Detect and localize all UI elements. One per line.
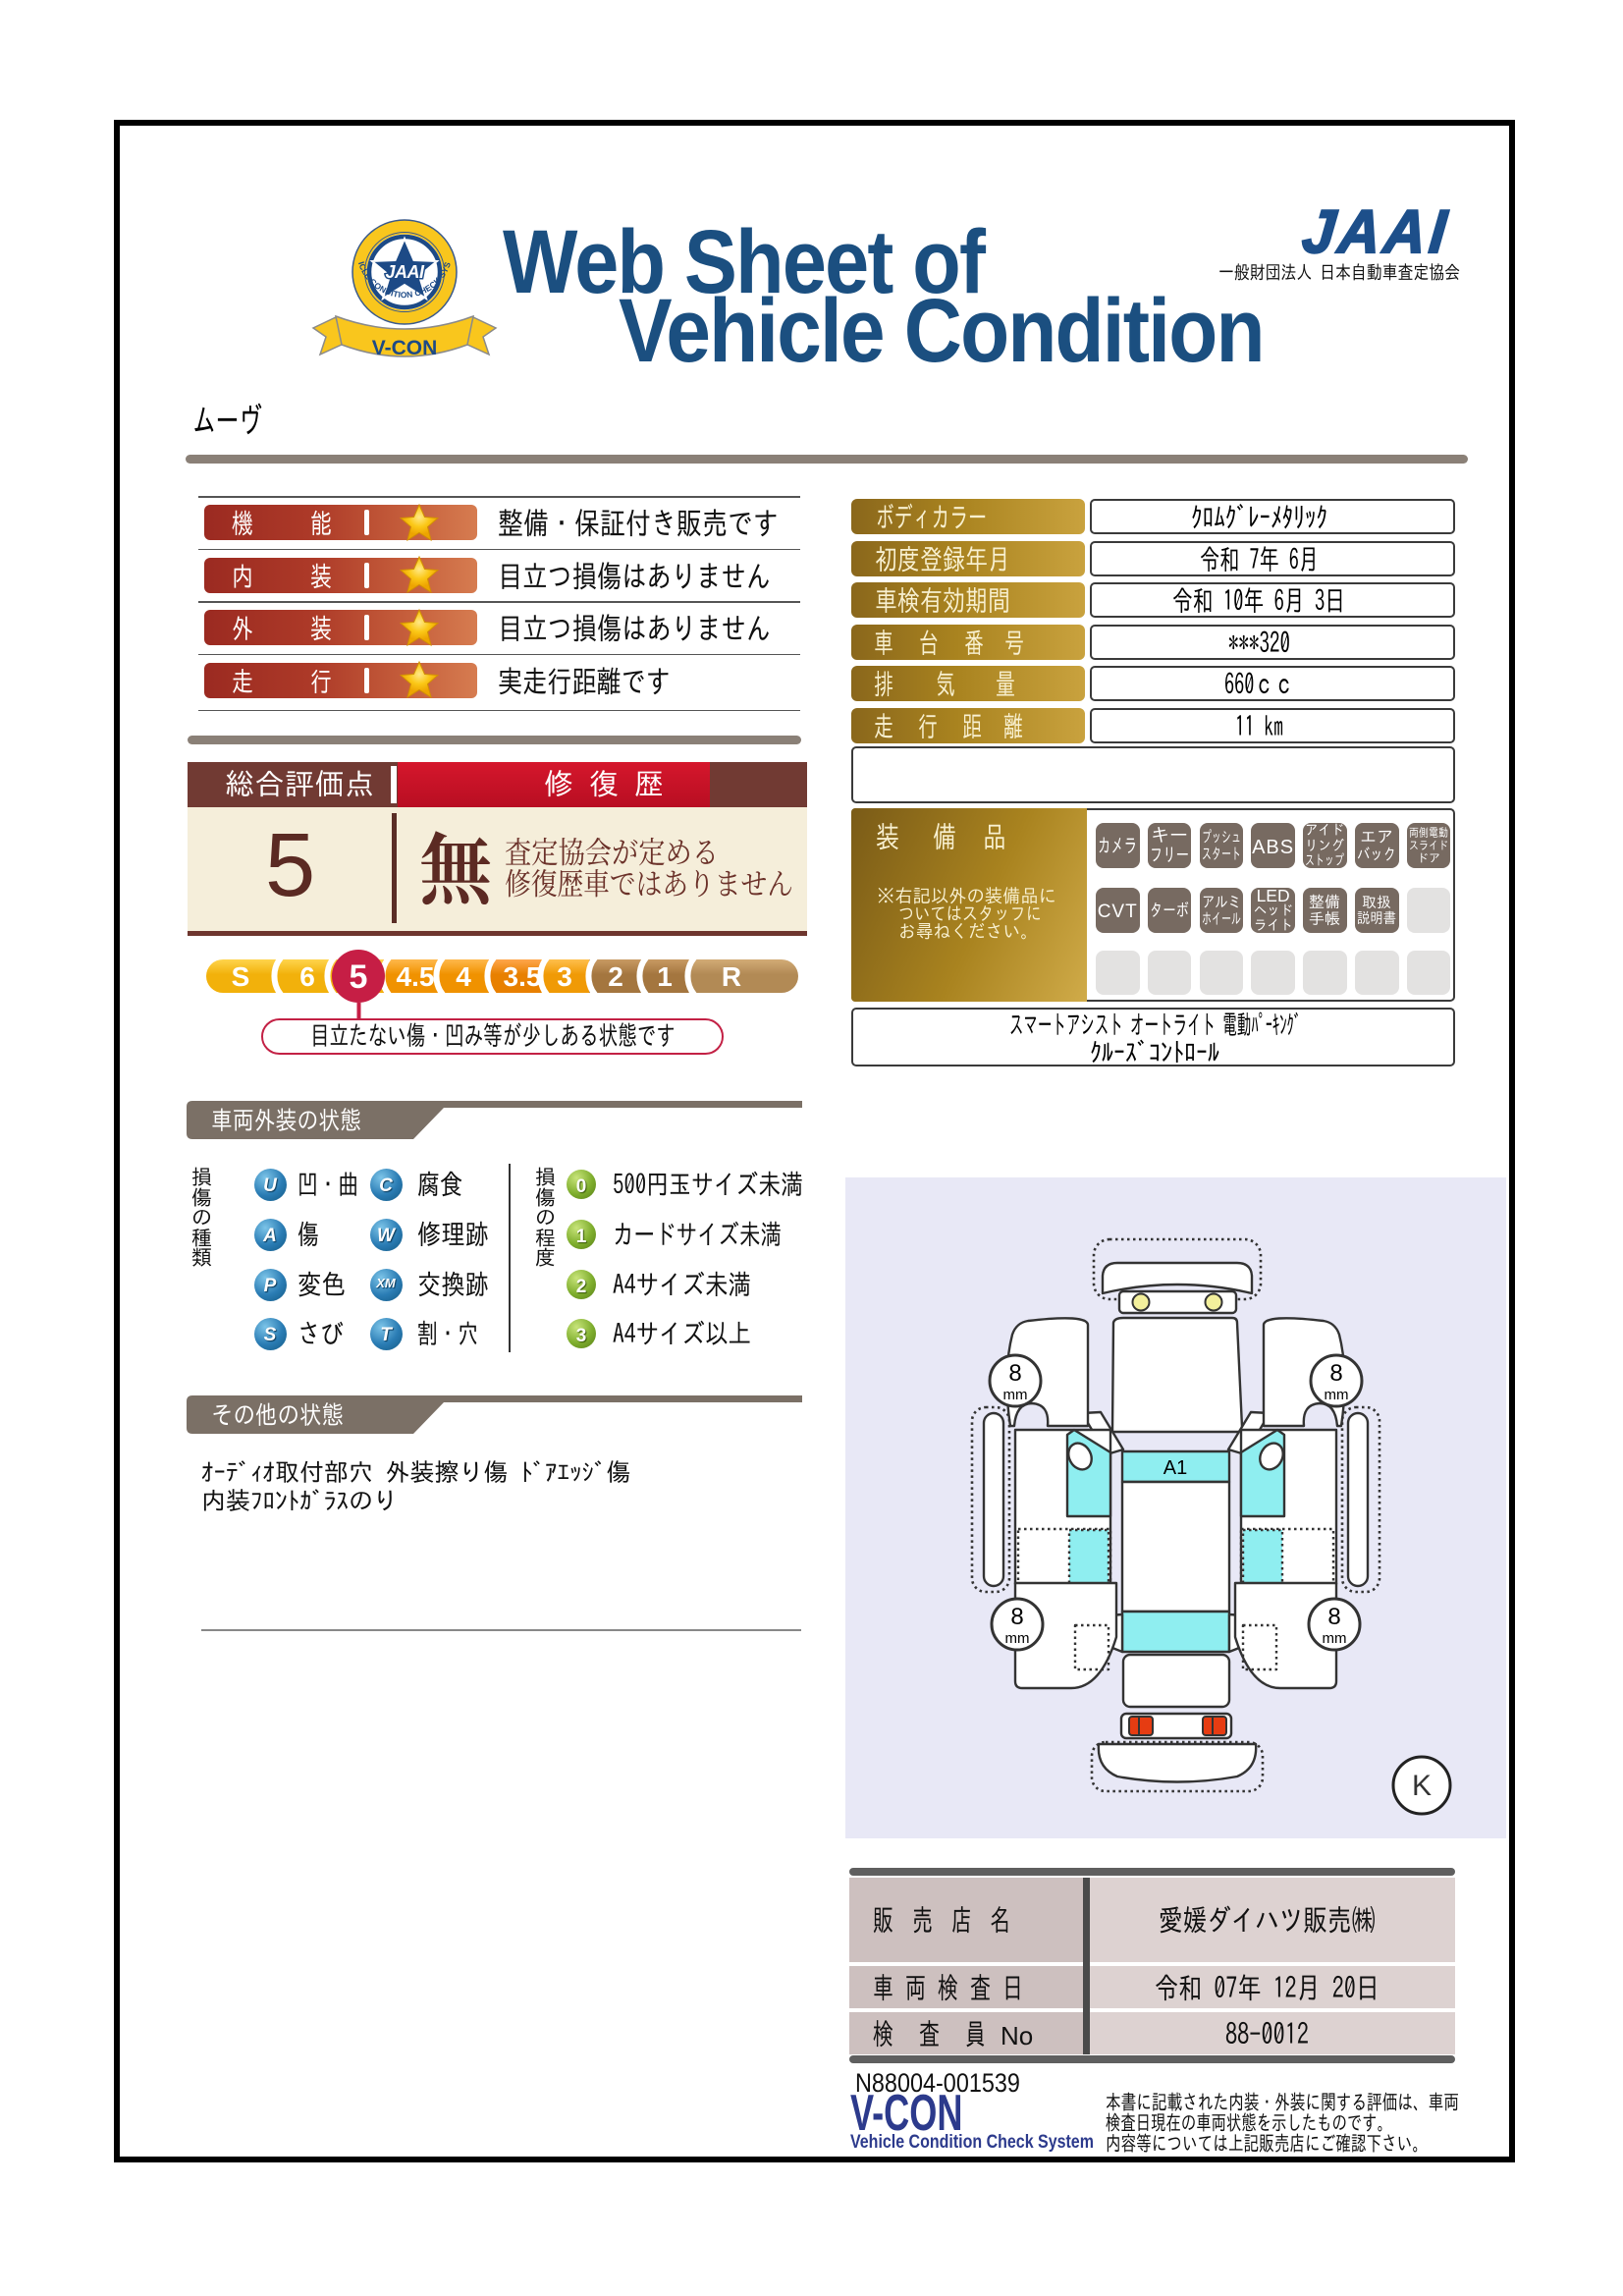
- svg-text:JAAI: JAAI: [385, 262, 425, 282]
- svg-text:1: 1: [657, 961, 673, 992]
- svg-text:4: 4: [456, 961, 471, 992]
- svg-text:2: 2: [608, 961, 623, 992]
- svg-text:8: 8: [1008, 1360, 1021, 1387]
- svg-text:V-CON: V-CON: [372, 337, 438, 359]
- svg-text:mm: mm: [1325, 1387, 1349, 1403]
- svg-text:A1: A1: [1163, 1457, 1187, 1479]
- svg-text:R: R: [722, 961, 741, 992]
- svg-text:mm: mm: [1323, 1630, 1347, 1647]
- svg-text:3.5: 3.5: [504, 961, 542, 992]
- svg-text:8: 8: [1329, 1360, 1342, 1387]
- svg-text:6: 6: [299, 961, 315, 992]
- svg-text:3: 3: [557, 961, 572, 992]
- svg-text:mm: mm: [1005, 1630, 1030, 1647]
- svg-text:S: S: [232, 961, 250, 992]
- svg-text:4.5: 4.5: [397, 961, 435, 992]
- svg-text:8: 8: [1327, 1604, 1340, 1630]
- svg-text:mm: mm: [1003, 1387, 1028, 1403]
- svg-text:K: K: [1412, 1770, 1432, 1802]
- svg-text:5: 5: [350, 958, 368, 996]
- svg-text:8: 8: [1010, 1604, 1023, 1630]
